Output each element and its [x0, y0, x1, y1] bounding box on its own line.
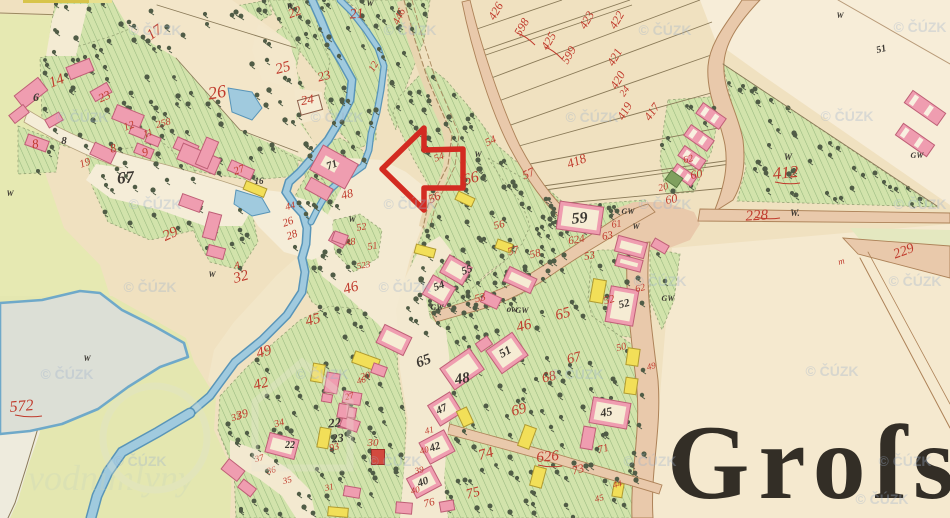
svg-text:6: 6	[33, 90, 39, 104]
svg-text:W: W	[286, 2, 294, 11]
svg-text:16: 16	[255, 176, 265, 186]
svg-text:W: W	[836, 11, 844, 20]
svg-text:48: 48	[345, 236, 357, 249]
svg-text:© ČÚZK: © ČÚZK	[123, 278, 176, 295]
svg-text:626: 626	[536, 448, 560, 466]
svg-text:21: 21	[349, 6, 364, 22]
svg-text:GW: GW	[622, 207, 636, 216]
svg-text:© ČÚZK: © ČÚZK	[888, 272, 941, 289]
svg-text:22: 22	[284, 440, 295, 451]
svg-text:© ČÚZK: © ČÚZK	[638, 21, 691, 38]
svg-text:W: W	[366, 0, 374, 8]
svg-text:© ČÚZK: © ČÚZK	[383, 195, 436, 212]
svg-text:GW: GW	[516, 306, 530, 315]
svg-text:59: 59	[571, 209, 588, 227]
svg-text:© ČÚZK: © ČÚZK	[550, 365, 603, 382]
svg-text:© ČÚZK: © ČÚZK	[40, 365, 93, 382]
svg-text:412: 412	[772, 162, 800, 183]
svg-text:A: A	[233, 260, 240, 270]
svg-text:© ČÚZK: © ČÚZK	[893, 195, 946, 212]
svg-text:GW: GW	[911, 151, 925, 160]
svg-text:W: W	[474, 150, 482, 159]
svg-text:© ČÚZK: © ČÚZK	[878, 452, 931, 469]
svg-text:23: 23	[330, 431, 344, 446]
svg-text:45: 45	[598, 404, 613, 420]
svg-text:© ČÚZK: © ČÚZK	[378, 278, 431, 295]
svg-text:© ČÚZK: © ČÚZK	[623, 452, 676, 469]
svg-text:© ČÚZK: © ČÚZK	[633, 272, 686, 289]
svg-text:© ČÚZK: © ČÚZK	[805, 362, 858, 379]
svg-text:© ČÚZK: © ČÚZK	[383, 21, 436, 38]
svg-text:48: 48	[453, 370, 472, 389]
svg-text:W.: W.	[790, 208, 800, 218]
svg-text:W: W	[784, 152, 793, 162]
svg-text:51: 51	[367, 240, 379, 253]
svg-text:GW: GW	[431, 303, 445, 312]
svg-text:61: 61	[611, 218, 623, 231]
svg-text:© ČÚZK: © ČÚZK	[128, 195, 181, 212]
svg-text:26: 26	[206, 81, 227, 104]
svg-text:52: 52	[356, 221, 368, 234]
svg-text:© ČÚZK: © ČÚZK	[368, 452, 421, 469]
svg-text:© ČÚZK: © ČÚZK	[55, 108, 108, 125]
svg-text:22: 22	[326, 414, 342, 430]
svg-text:W: W	[208, 270, 216, 279]
svg-text:572: 572	[9, 397, 34, 416]
svg-text:60: 60	[689, 166, 703, 182]
svg-text:W: W	[6, 189, 14, 198]
svg-text:8: 8	[61, 135, 67, 147]
svg-text:© ČÚZK: © ČÚZK	[310, 108, 363, 125]
svg-text:30: 30	[367, 437, 380, 449]
svg-text:© ČÚZK: © ČÚZK	[893, 18, 946, 35]
svg-text:© ČÚZK: © ČÚZK	[820, 107, 873, 124]
svg-text:W: W	[348, 215, 356, 224]
svg-text:W: W	[632, 222, 640, 231]
svg-text:© ČÚZK: © ČÚZK	[638, 195, 691, 212]
svg-text:© ČÚZK: © ČÚZK	[128, 21, 181, 38]
svg-text:© ČÚZK: © ČÚZK	[855, 490, 908, 507]
svg-text:67: 67	[116, 167, 136, 188]
svg-text:© ČÚZK: © ČÚZK	[565, 108, 618, 125]
svg-text:GW: GW	[662, 294, 676, 303]
svg-text:228: 228	[745, 207, 769, 224]
svg-text:W: W	[83, 354, 91, 363]
